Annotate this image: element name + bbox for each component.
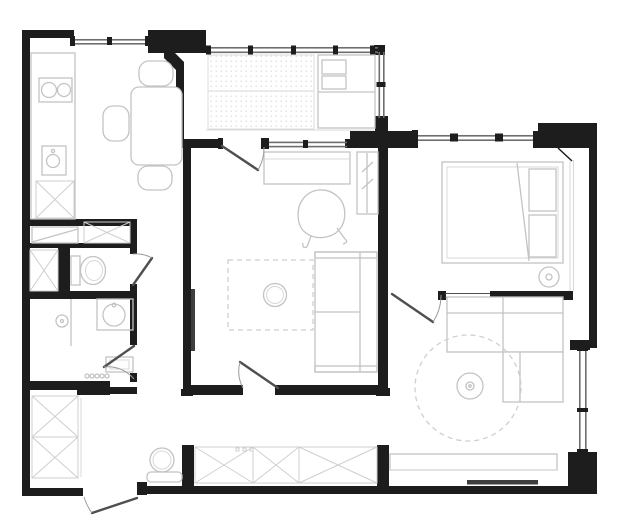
- cooktop: [39, 78, 72, 102]
- corridor-wardrobe-block-left: [182, 445, 194, 486]
- shoe-shelf: [32, 227, 78, 243]
- balcony-door-jamb-right: [261, 138, 269, 149]
- wall-hall-top: [110, 387, 137, 394]
- double-bed: [442, 162, 563, 263]
- balcony-door: [222, 146, 264, 170]
- wc-crosshatch-cabinet: [30, 250, 58, 291]
- wall-balcony-bedroom-pillar: [350, 131, 415, 148]
- kitchen-window: [70, 36, 150, 46]
- hall-wardrobe-left: [32, 396, 81, 478]
- entry-door: [84, 497, 137, 513]
- wc-door: [133, 254, 152, 285]
- balcony-glazing-right: [377, 52, 386, 118]
- corridor-wardrobe: [195, 447, 377, 483]
- vent-holes: [85, 374, 109, 378]
- wall-living-bottom-right: [278, 385, 388, 395]
- wall-living-kids: [378, 296, 388, 389]
- wc-duct-wall: [58, 248, 70, 292]
- living-desk: [264, 152, 350, 184]
- wc-door-jamb-top: [130, 246, 137, 254]
- bathroom-door-jamb: [130, 373, 137, 382]
- hallway: [32, 396, 377, 483]
- washbasin: [97, 299, 133, 330]
- bedroom: [442, 160, 574, 291]
- toilet: [71, 256, 106, 285]
- wall-bathroom-bottom-step: [77, 381, 110, 395]
- kids-room-door: [392, 294, 441, 322]
- bedroom-door-jamb: [438, 291, 446, 300]
- kitchen-sink: [42, 146, 66, 175]
- dining-chair-top: [139, 61, 173, 86]
- kitchen: [31, 53, 182, 219]
- kids-desk: [390, 454, 557, 470]
- dining-table: [131, 87, 182, 165]
- living-room-door: [239, 362, 278, 388]
- balcony-glazing-top: [206, 46, 378, 55]
- wall-living-bedroom: [378, 148, 388, 296]
- hall-mirror: [150, 448, 174, 472]
- wall-wc-top: [29, 243, 137, 248]
- living-radiator: [191, 289, 195, 351]
- wall-left: [22, 30, 30, 495]
- entry-jamb-right: [137, 482, 147, 495]
- wall-living-top-left: [183, 139, 222, 148]
- wall-wc-stub-top: [130, 219, 137, 246]
- balcony-daybed: [318, 55, 375, 128]
- bedroom-window: [412, 130, 539, 148]
- living-pouf: [264, 284, 287, 307]
- wall-top-right-block: [538, 123, 596, 148]
- living-rug: [228, 260, 313, 330]
- wall-right-upper: [589, 123, 597, 348]
- kids-door-hinge-block: [378, 290, 388, 296]
- wall-wc-bathroom: [29, 291, 137, 299]
- kids-radiator: [467, 480, 538, 485]
- kids-room-window: [577, 346, 588, 454]
- kids-room: [390, 297, 563, 485]
- shower-step: [106, 357, 133, 372]
- dining-chair-left: [103, 106, 129, 141]
- wall-top-kitchen-block: [148, 30, 206, 53]
- balcony-bottom-block: [375, 116, 388, 132]
- floor-plan-page: [0, 0, 641, 523]
- wall-living-bottom-left: [191, 385, 243, 395]
- shower-area: [56, 299, 71, 346]
- wardrobe-cabinet: [357, 152, 378, 214]
- balcony-dotted-floor: [208, 55, 314, 129]
- wall-living-left: [183, 148, 191, 395]
- kids-pouf: [457, 373, 483, 399]
- kitchen-crosshatch-cabinet: [36, 181, 74, 218]
- bathroom: [56, 299, 133, 378]
- living-room-window: [269, 140, 347, 148]
- wall-right-lower-block: [568, 452, 597, 492]
- wall-bottom: [137, 486, 597, 494]
- bedroom-corner-chamfer: [558, 148, 572, 161]
- living-sofa: [315, 252, 377, 372]
- floor-plan-canvas: [0, 0, 641, 523]
- armchair: [298, 190, 347, 248]
- dining-chair-bottom: [138, 166, 172, 190]
- living-room: [191, 152, 378, 372]
- corridor-wardrobe-block-right: [377, 445, 389, 486]
- wall-bottom-left: [22, 488, 83, 496]
- hall-bench: [147, 472, 182, 482]
- nightstand: [539, 267, 559, 287]
- balcony: [206, 55, 375, 130]
